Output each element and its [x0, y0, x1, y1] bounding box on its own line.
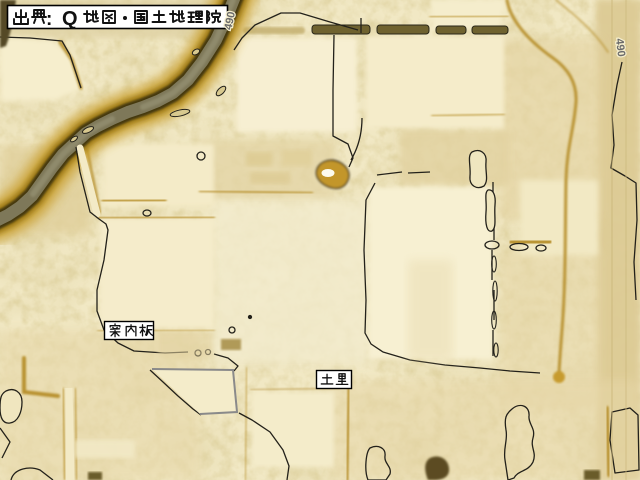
svg-text::: :: [46, 9, 52, 30]
svg-text:490: 490: [613, 38, 627, 58]
svg-text:Q: Q: [62, 8, 78, 30]
